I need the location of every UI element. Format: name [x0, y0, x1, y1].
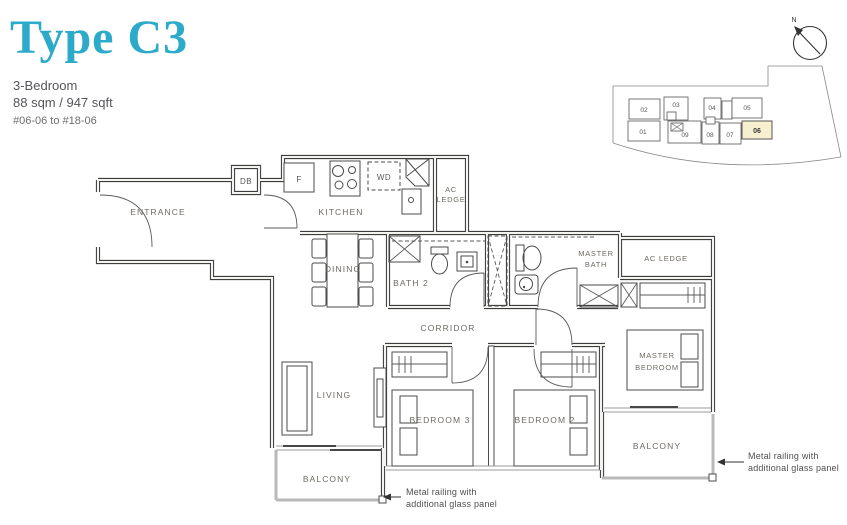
toilet-bowl: [523, 246, 541, 270]
room-label-master-bath: MASTER: [578, 249, 613, 258]
keyplan-label-05: 05: [743, 105, 751, 112]
room-label-balcony-right: BALCONY: [633, 441, 681, 451]
keyplan-label-08: 08: [706, 132, 714, 139]
room-label-corridor: CORRIDOR: [420, 323, 475, 333]
sliding-door-leaves: [283, 407, 678, 450]
room-label-balcony-left: BALCONY: [303, 474, 351, 484]
room-label-ac-ledge-top: AC: [445, 185, 457, 194]
bedroom3-wardrobe: [392, 352, 447, 377]
tv-console: [374, 368, 386, 427]
keyplan-core: [722, 101, 732, 119]
kitchen-sink: [402, 189, 421, 214]
room-label-bath2: BATH 2: [393, 278, 429, 288]
master-bed: [627, 330, 703, 390]
room-label-entrance: ENTRANCE: [130, 207, 186, 217]
svg-text:LEDGE: LEDGE: [437, 195, 466, 204]
room-label-bedroom3: BEDROOM 3: [410, 415, 471, 425]
railing-note-right: Metal railing with: [748, 451, 819, 461]
chair: [359, 287, 373, 306]
keyplan-label-09: 09: [681, 132, 689, 139]
fridge-label: F: [296, 175, 301, 184]
chair: [359, 239, 373, 258]
compass-icon: N: [791, 17, 826, 60]
floorplan-page: { "header": { "title": "Type C3", "type"…: [0, 0, 847, 525]
room-label-ac-ledge-right: AC LEDGE: [644, 254, 688, 263]
windows-and-railings: [276, 407, 716, 503]
room-label-dining: DINING: [325, 264, 361, 274]
railing-post-right: [709, 474, 716, 481]
keyplan-label-02: 02: [640, 107, 648, 114]
keyplan-label-04: 04: [708, 105, 716, 112]
db-label: DB: [240, 177, 252, 186]
keyplan-label-06: 06: [753, 128, 761, 135]
room-label-master-bedroom: MASTER: [639, 351, 674, 360]
chair: [312, 239, 326, 258]
floor-plan: ENTRANCE KITCHEN DINING BATH 2 MASTER BA…: [0, 0, 847, 525]
room-label-kitchen: KITCHEN: [318, 207, 363, 217]
svg-text:additional glass panel: additional glass panel: [748, 463, 839, 473]
keyplan-label-01: 01: [639, 129, 647, 136]
keyplan-label-03: 03: [672, 102, 680, 109]
bedroom2-wardrobe: [541, 352, 596, 377]
closet-and-ducts: [392, 236, 595, 306]
room-label-living: LIVING: [317, 390, 351, 400]
bedroom-divider-wall: [489, 346, 495, 466]
svg-text:BEDROOM: BEDROOM: [635, 363, 679, 372]
washer-dryer-label: WD: [377, 173, 391, 182]
corner-unit: [406, 159, 429, 186]
room-label-bedroom2: BEDROOM 2: [515, 415, 576, 425]
master-wardrobe: [640, 283, 705, 308]
keyplan-label-07: 07: [726, 132, 734, 139]
railing-note-left: Metal railing with: [406, 487, 477, 497]
kitchen-fixtures: [284, 159, 429, 214]
toilet-tank: [431, 247, 448, 254]
north-label: N: [791, 17, 796, 24]
svg-text:additional glass panel: additional glass panel: [406, 499, 497, 509]
svg-text:BATH: BATH: [585, 260, 607, 269]
bath2-fixtures: [389, 236, 477, 274]
key-plan: 02 03 04 05 01 09 08 07 06: [613, 66, 841, 165]
chair: [312, 287, 326, 306]
toilet-bowl: [432, 254, 448, 274]
arrow-right-note: [717, 459, 725, 466]
